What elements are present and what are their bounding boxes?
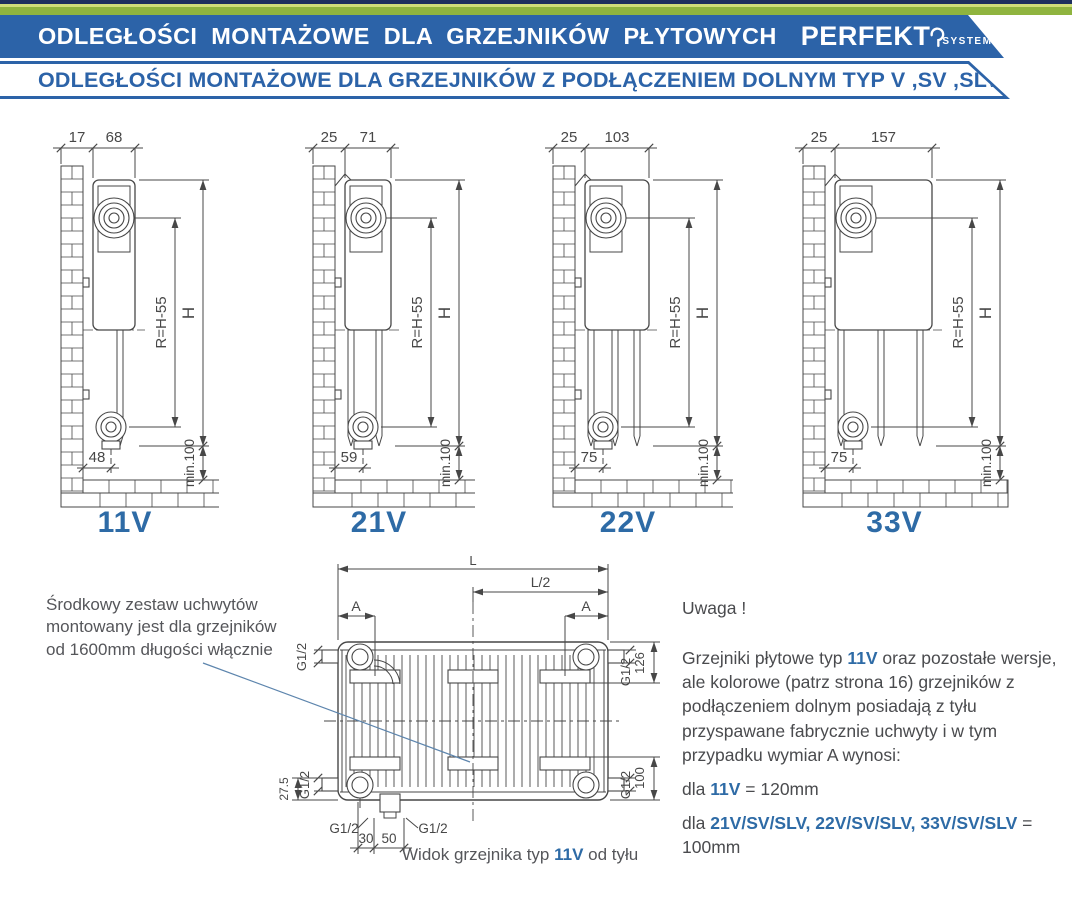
top-green-strip: [0, 7, 1072, 15]
notice-line-11v: dla 11V = 120mm: [682, 777, 1070, 801]
side-view-drawing-21v: 2571R=H-55Hmin.10059: [283, 128, 475, 510]
svg-text:30: 30: [358, 831, 373, 846]
notice-text: dla: [682, 813, 710, 833]
notice-line-others: dla 21V/SV/SLV, 22V/SV/SLV, 33V/SV/SLV =…: [682, 811, 1070, 859]
svg-text:R=H-55: R=H-55: [950, 296, 967, 348]
mounting-note: Środkowy zestaw uchwytów montowany jest …: [46, 594, 314, 661]
notice-type-key: 11V: [710, 779, 740, 799]
svg-text:100: 100: [632, 767, 647, 789]
header-title: ODLEGŁOŚCI MONTAŻOWE DLA GRZEJNIKÓW PŁYT…: [38, 23, 777, 50]
sub-banner: ODLEGŁOŚCI MONTAŻOWE DLA GRZEJNIKÓW Z PO…: [0, 61, 1072, 99]
svg-text:R=H-55: R=H-55: [409, 296, 426, 348]
caption-prefix: Widok grzejnika typ: [402, 845, 554, 864]
svg-text:17: 17: [69, 129, 86, 146]
svg-text:R=H-55: R=H-55: [667, 296, 684, 348]
caption-type: 11V: [554, 845, 583, 864]
logo-main-text: PERFEKT: [801, 23, 931, 50]
side-view-drawing-22v: 25103R=H-55Hmin.10075: [523, 128, 733, 510]
svg-text:103: 103: [604, 129, 629, 146]
svg-text:27.5: 27.5: [278, 777, 291, 801]
svg-text:48: 48: [89, 449, 106, 466]
svg-text:H: H: [435, 307, 454, 319]
diagram-22v: 25103R=H-55Hmin.10075 22V: [523, 128, 733, 540]
diagram-label-22v: 22V: [523, 506, 733, 540]
svg-text:68: 68: [106, 129, 123, 146]
svg-text:50: 50: [381, 831, 396, 846]
svg-text:min.100: min.100: [696, 439, 711, 487]
notice-text: dla: [682, 779, 710, 799]
diagram-33v: 25157R=H-55Hmin.10075 33V: [773, 128, 1016, 540]
svg-text:H: H: [976, 307, 995, 319]
diagram-label-33v: 33V: [773, 506, 1016, 540]
svg-text:75: 75: [581, 449, 598, 466]
diagram-21v: 2571R=H-55Hmin.10059 21V: [283, 128, 475, 540]
svg-text:G1/2: G1/2: [294, 643, 309, 671]
perfekt-logo: PERFEKT SYSTEM: [801, 23, 993, 50]
svg-text:L: L: [469, 556, 476, 568]
svg-text:71: 71: [360, 129, 377, 146]
page: ODLEGŁOŚCI MONTAŻOWE DLA GRZEJNIKÓW PŁYT…: [0, 0, 1072, 898]
sub-banner-inner: ODLEGŁOŚCI MONTAŻOWE DLA GRZEJNIKÓW Z PO…: [0, 64, 1072, 96]
svg-text:G1/2: G1/2: [618, 658, 633, 686]
svg-text:H: H: [693, 307, 712, 319]
svg-text:L/2: L/2: [531, 574, 551, 590]
svg-text:R=H-55: R=H-55: [153, 296, 170, 348]
notice-text: Grzejniki płytowe typ: [682, 648, 847, 668]
svg-text:G1/2: G1/2: [329, 821, 358, 836]
side-view-drawing-33v: 25157R=H-55Hmin.10075: [773, 128, 1016, 510]
rear-view-caption: Widok grzejnika typ 11V od tyłu: [402, 845, 638, 865]
svg-text:25: 25: [321, 129, 338, 146]
svg-text:25: 25: [811, 129, 828, 146]
notice-block: Uwaga ! Grzejniki płytowe typ 11V oraz p…: [682, 596, 1070, 859]
sub-banner-title: ODLEGŁOŚCI MONTAŻOWE DLA GRZEJNIKÓW Z PO…: [38, 68, 1000, 93]
mounting-note-line: od 1600mm długości włącznie: [46, 639, 314, 661]
svg-text:157: 157: [871, 129, 896, 146]
diagram-11v: 1768R=H-55Hmin.10048 11V: [31, 128, 219, 540]
mounting-note-line: Środkowy zestaw uchwytów: [46, 594, 314, 616]
mounting-note-line: montowany jest dla grzejników: [46, 616, 314, 638]
svg-text:A: A: [581, 598, 591, 614]
svg-text:G1/2: G1/2: [297, 771, 312, 799]
svg-text:25: 25: [561, 129, 578, 146]
svg-text:126: 126: [632, 652, 647, 674]
notice-type-key: 21V/SV/SLV, 22V/SV/SLV, 33V/SV/SLV: [710, 813, 1017, 833]
caption-suffix: od tyłu: [583, 845, 638, 864]
svg-text:G1/2: G1/2: [618, 771, 633, 799]
header-banner: ODLEGŁOŚCI MONTAŻOWE DLA GRZEJNIKÓW PŁYT…: [0, 15, 1072, 58]
svg-text:H: H: [179, 307, 198, 319]
logo-sub-text: SYSTEM: [942, 36, 992, 47]
notice-type-key: 11V: [847, 648, 877, 668]
svg-text:A: A: [351, 598, 361, 614]
notice-paragraph: Grzejniki płytowe typ 11V oraz pozostałe…: [682, 646, 1070, 767]
notice-title: Uwaga !: [682, 596, 1070, 620]
svg-text:59: 59: [341, 449, 358, 466]
svg-text:min.100: min.100: [182, 439, 197, 487]
side-view-drawing-11v: 1768R=H-55Hmin.10048: [31, 128, 219, 510]
diagram-label-11v: 11V: [31, 506, 219, 540]
svg-text:75: 75: [831, 449, 848, 466]
diagram-label-21v: 21V: [283, 506, 475, 540]
svg-text:G1/2: G1/2: [418, 821, 447, 836]
notice-text: = 120mm: [740, 779, 818, 799]
svg-text:min.100: min.100: [979, 439, 994, 487]
rear-view-drawing: LL/2AAG1/2G1/2126G1/210027.5G1/2G1/2G1/2…: [278, 556, 673, 858]
rear-view-diagram: LL/2AAG1/2G1/2126G1/210027.5G1/2G1/2G1/2…: [278, 556, 673, 863]
svg-text:min.100: min.100: [438, 439, 453, 487]
